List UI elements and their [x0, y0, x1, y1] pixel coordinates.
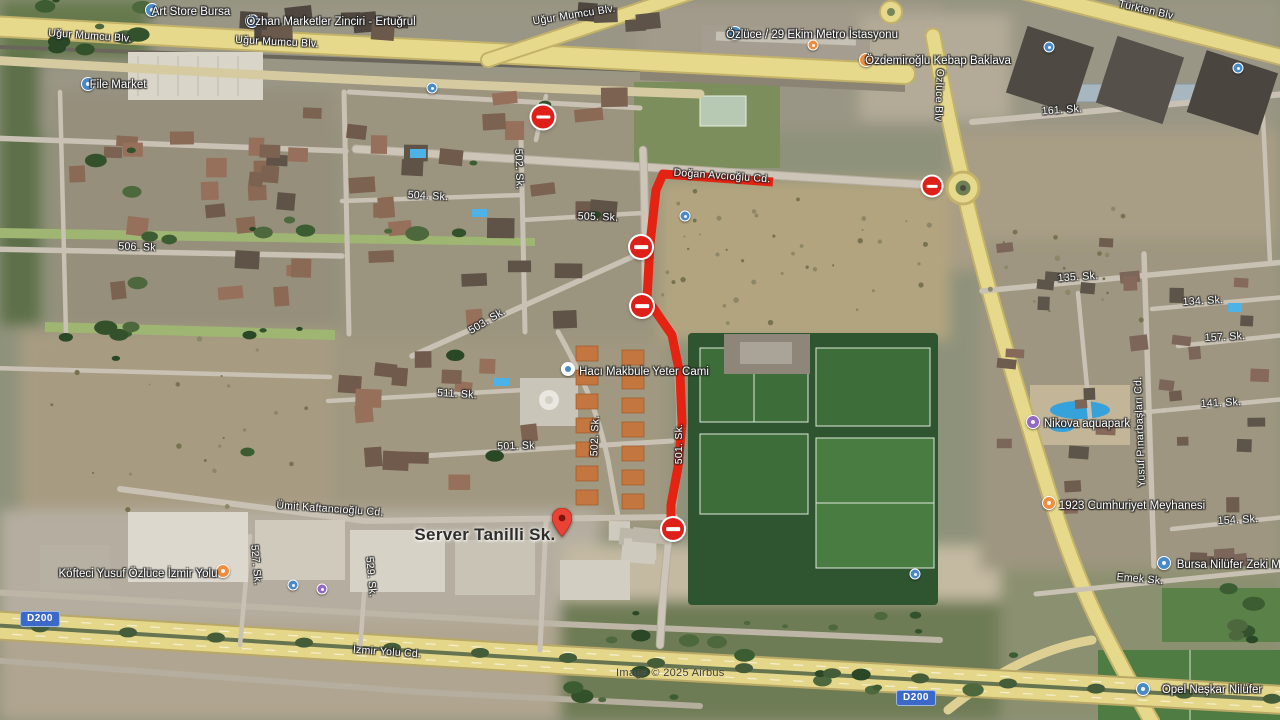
map-label-layer: Uğur Mumcu Blv.Uğur Mumcu Blv.Uğur Mumcu…: [0, 0, 1280, 720]
orange-poi-dot-icon[interactable]: [808, 40, 819, 51]
blue-poi-dot-icon[interactable]: [680, 211, 691, 222]
road-label-501-sk: 501. Sk: [497, 439, 535, 452]
blue-poi-dot-icon[interactable]: [288, 580, 299, 591]
poi-label-kofteci-yusuf-ozluce[interactable]: Köfteci Yusuf Özlüce İzmir Yolu: [59, 568, 218, 580]
no-entry-closure-icon[interactable]: [631, 295, 653, 317]
blue-poi-dot-icon[interactable]: [910, 569, 921, 580]
road-label-mit-kaftanc-o-lu-cd: Ümit Kaftancıoğlu Cd.: [276, 499, 384, 518]
kofteci-yusuf-ozluce-poi-icon[interactable]: [216, 564, 230, 578]
road-label-504-sk: 504. Sk.: [407, 189, 448, 203]
road-label-141-sk: 141. Sk.: [1200, 396, 1241, 410]
road-label-503-sk: 503. Sk.: [467, 305, 508, 336]
road-label-u-ur-mumcu-blv: Uğur Mumcu Blv.: [48, 27, 132, 45]
road-label-154-sk: 154. Sk.: [1217, 513, 1258, 527]
road-label-161-sk: 161. Sk.: [1041, 103, 1082, 118]
road-label-502-sk: 502. Sk.: [512, 149, 525, 190]
road-label-zl-ce-blv: Özlüce Blv: [932, 68, 946, 121]
road-label-yusuf-p-narba-lar-cd: Yusuf Pınarbaşları Cd.: [1132, 377, 1148, 488]
searched-street-label[interactable]: Server Tanilli Sk.: [414, 525, 555, 545]
road-label-do-an-avc-o-lu-cd: Doğan Avcıoğlu Cd.: [673, 167, 771, 186]
blue-poi-dot-icon[interactable]: [1233, 63, 1244, 74]
road-label-505-sk: 505. Sk.: [578, 210, 619, 223]
road-label-157-sk: 157. Sk.: [1204, 330, 1245, 344]
purple-poi-dot-icon[interactable]: [317, 584, 328, 595]
road-label-527-sk: 527. Sk.: [248, 544, 263, 585]
road-label-502-sk: 502. Sk.: [588, 416, 601, 457]
road-label-501-sk: 501. Sk.: [673, 424, 685, 465]
road-label-511-sk: 511. Sk.: [437, 387, 477, 401]
d200-route-shield: D200: [20, 611, 60, 627]
poi-label-ozhan-marketler-zinciri[interactable]: Özhan Marketler Zinciri - Ertuğrul: [246, 16, 415, 28]
poi-label-art-store-bursa[interactable]: Art Store Bursa: [152, 6, 231, 18]
location-pin-icon[interactable]: [552, 508, 572, 542]
blue-poi-dot-icon[interactable]: [1044, 42, 1055, 53]
no-entry-closure-icon[interactable]: [662, 518, 684, 540]
road-label-506-sk: 506. Sk: [118, 240, 156, 253]
1923-cumhuriyet-meyhanesi-poi-icon[interactable]: [1042, 496, 1056, 510]
poi-label-bursa-nilufer-zeki[interactable]: Bursa Nilüfer Zeki Mü: [1177, 559, 1280, 571]
road-label-529-sk: 529. Sk.: [363, 556, 378, 597]
d200-route-shield: D200: [896, 690, 936, 706]
road-label-135-sk: 135. Sk.: [1057, 270, 1098, 285]
poi-label-ozdemiroglu-kebap-baklava[interactable]: Özdemiroğlu Kebap Baklava: [865, 55, 1011, 67]
poi-label-opel-neskar-nilufer[interactable]: Opel Neşkar Nilüfer: [1162, 684, 1262, 696]
nikova-aquapark-poi-icon[interactable]: [1026, 415, 1040, 429]
opel-neskar-nilufer-poi-icon[interactable]: [1136, 682, 1150, 696]
poi-label-haci-makbule-yeter-cami[interactable]: Hacı Makbule Yeter Cami: [579, 366, 709, 378]
no-entry-closure-icon[interactable]: [532, 106, 555, 129]
road-label-u-ur-mumcu-blv: Uğur Mumcu Blv.: [235, 34, 319, 50]
no-entry-closure-icon[interactable]: [630, 236, 652, 258]
bursa-nilufer-zeki-poi-icon[interactable]: [1157, 556, 1171, 570]
blue-poi-dot-icon[interactable]: [427, 83, 438, 94]
road-label-emek-sk: Emek Sk.: [1116, 571, 1164, 587]
haci-makbule-yeter-cami-poi-icon[interactable]: [561, 362, 575, 376]
road-label-134-sk: 134. Sk.: [1182, 294, 1223, 308]
imagery-attribution: Image © 2025 Airbus: [616, 667, 725, 679]
satellite-map-canvas[interactable]: Uğur Mumcu Blv.Uğur Mumcu Blv.Uğur Mumcu…: [0, 0, 1280, 720]
poi-label-file-market[interactable]: File Market: [90, 79, 147, 91]
road-label-u-ur-mumcu-blv: Uğur Mumcu Blv.: [532, 3, 616, 28]
poi-label-nikova-aquapark[interactable]: Nikova aquapark: [1044, 418, 1130, 430]
road-label-i-zmir-yolu-cd: İzmir Yolu Cd.: [353, 644, 422, 661]
no-entry-closure-icon[interactable]: [923, 177, 942, 196]
poi-label-1923-cumhuriyet-meyhanesi[interactable]: 1923 Cumhuriyet Meyhanesi: [1059, 500, 1205, 512]
road-label-t-rkten-blv: Türkten Blv: [1117, 0, 1174, 22]
